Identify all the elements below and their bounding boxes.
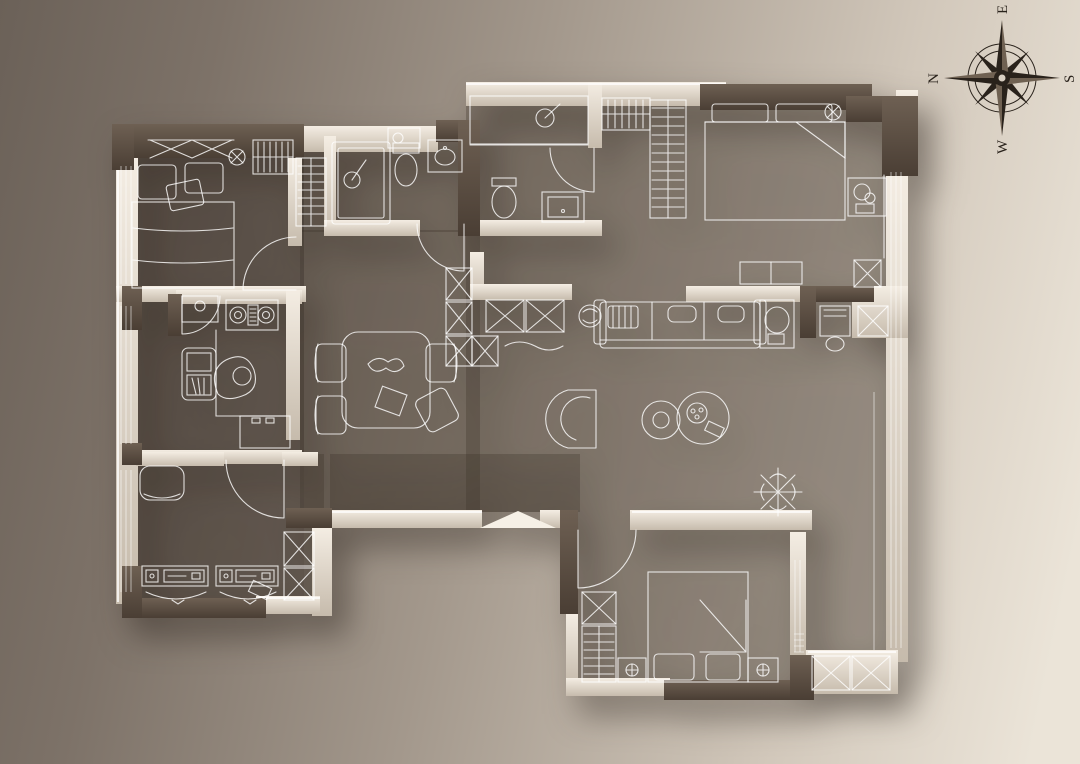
compass-rose: E N S W bbox=[926, 5, 1078, 154]
window-wall-right bbox=[886, 166, 908, 662]
plant-large bbox=[754, 468, 802, 516]
compass-label-bottom: W bbox=[995, 139, 1011, 154]
compass-label-right: S bbox=[1062, 75, 1078, 83]
floor-plan bbox=[112, 82, 918, 700]
floor-plan-svg: E N S W bbox=[0, 0, 1080, 764]
window-wall-left bbox=[116, 154, 138, 604]
floor-shade-left bbox=[132, 152, 304, 606]
floor-plan-scene: E N S W bbox=[0, 0, 1080, 764]
compass-label-top: E bbox=[995, 5, 1011, 14]
compass-hub-ring bbox=[999, 75, 1006, 82]
compass-label-left: N bbox=[926, 73, 942, 84]
